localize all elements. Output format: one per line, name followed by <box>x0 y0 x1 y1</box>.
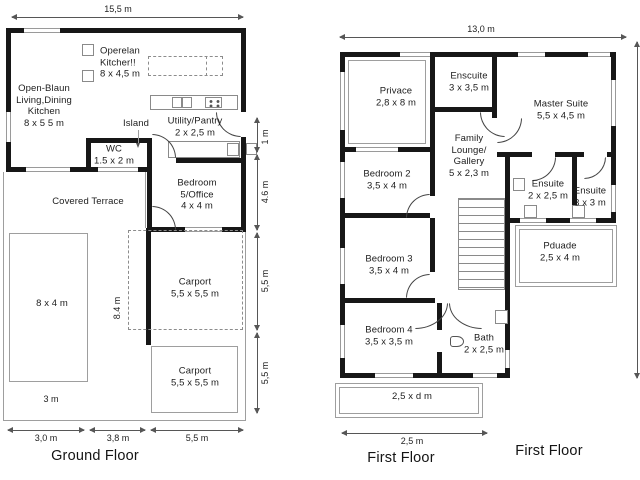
terrace-boundary <box>145 172 146 228</box>
wall <box>6 28 11 172</box>
window <box>98 167 138 172</box>
room-label-pool: 8 x 4 m <box>36 298 68 310</box>
window <box>570 218 596 223</box>
wall <box>505 157 510 378</box>
wall <box>147 158 152 163</box>
window <box>611 185 616 212</box>
ground-line <box>3 420 246 421</box>
room-label-utility: Utility/Pantry 2 x 2,5 m <box>168 115 223 138</box>
window <box>340 162 345 198</box>
door-arc <box>152 206 176 230</box>
room-label-ensuite-mid: Ensuite 2 x 2,5 m <box>528 178 568 201</box>
room-label-family: Family Lounge/ Gallery 5 x 2,3 m <box>449 133 489 179</box>
door-arc <box>497 118 522 143</box>
window <box>340 72 345 130</box>
dimension-line <box>342 433 487 434</box>
room-label-carport1: Carport 5,5 x 5,5 m <box>171 276 219 299</box>
dimension-label: 5,5 m <box>260 362 270 385</box>
first-floor-title: First Floor <box>367 450 434 466</box>
toilet-icon <box>450 336 464 347</box>
dimension-line <box>8 430 84 431</box>
door-arc <box>406 274 430 298</box>
room-label-bedroom4: Bedroom 4 3,5 x 3,5 m <box>365 324 413 347</box>
door-arc <box>532 157 556 181</box>
window <box>24 28 60 33</box>
legend-square-icon <box>82 70 94 82</box>
wall <box>241 28 246 112</box>
dimension-label: 13,0 m <box>467 24 495 34</box>
kitchen-counter <box>150 95 238 110</box>
shower-icon <box>524 205 537 218</box>
wall <box>492 52 497 118</box>
window <box>611 80 616 126</box>
terrace-boundary <box>3 172 4 420</box>
dimension-label: 15,5 m <box>104 4 132 14</box>
appliance-icon <box>227 143 239 156</box>
dimension-line <box>637 42 638 378</box>
floor-plan-canvas: 15,5 m <box>0 0 640 480</box>
dimension-line <box>90 430 145 431</box>
dimension-line <box>12 17 243 18</box>
dimension-line <box>257 233 258 330</box>
ground-floor-title: Ground Floor <box>51 448 139 464</box>
room-label-kitchen-note: Operelan Kitcher!! 8 x 4,5 m <box>100 46 140 81</box>
room-label-bedroom5: Bedroom 5/Office 4 x 4 m <box>177 178 216 213</box>
room-label-ensuite-right: Ensuite 3 x 3 m <box>574 185 606 208</box>
room-label-ensuite-top: Enscuite 3 x 3,5 m <box>449 70 489 93</box>
wall <box>340 52 616 57</box>
window <box>505 350 510 368</box>
staircase <box>458 198 505 290</box>
sink-icon <box>513 178 525 191</box>
window <box>518 52 545 57</box>
dimension-line <box>257 155 258 230</box>
window <box>26 167 70 172</box>
island-pointer-arrow <box>136 143 140 148</box>
room-label-living: Open-Blaun Living,Dining Kitchen 8 x 5 5… <box>16 83 72 129</box>
room-label-privace: Privace 2,8 x 8 m <box>376 85 416 108</box>
cistern-icon <box>495 310 508 324</box>
room-label-carport2: Carport 5,5 x 5,5 m <box>171 365 219 388</box>
island-pointer-line <box>138 130 139 143</box>
window <box>400 52 432 57</box>
window <box>340 248 345 284</box>
window <box>340 325 345 358</box>
room-label-master: Master Suite 5,5 x 4,5 m <box>534 98 589 121</box>
door-arc <box>406 194 430 218</box>
room-label-bath: Bath 2 x 2,5 m <box>464 332 504 355</box>
wall <box>497 152 532 157</box>
first-floor-side-title: First Floor <box>515 443 582 459</box>
window <box>6 112 11 142</box>
wall <box>86 138 152 143</box>
dimension-line <box>257 118 258 152</box>
room-label-bedroom3: Bedroom 3 3,5 x 4 m <box>365 253 412 276</box>
door-arc <box>584 157 606 179</box>
legend-square-icon <box>82 44 94 56</box>
window <box>356 147 398 152</box>
room-label-terrace: Covered Terrace <box>52 196 124 208</box>
room-label-bedroom2: Bedroom 2 3,5 x 4 m <box>363 168 410 191</box>
dimension-label: 5,5 m <box>260 270 270 293</box>
dimension-label: 1 m <box>260 129 270 144</box>
wall <box>430 52 435 196</box>
wall <box>430 218 435 272</box>
dimension-label: 3 m <box>43 394 58 404</box>
kitchen-island-divider <box>206 56 207 76</box>
wall <box>607 152 616 157</box>
room-label-wc: WC 1.5 x 2 m <box>94 143 134 166</box>
dimension-line <box>151 430 243 431</box>
room-label-balcony: 2,5 x d m <box>392 391 432 403</box>
sink-icon <box>182 97 192 108</box>
dimension-label: 2,5 m <box>401 436 424 446</box>
window <box>520 218 546 223</box>
dimension-line <box>257 333 258 413</box>
room-label-pduade: Pduade 2,5 x 4 m <box>540 240 580 263</box>
terrace-boundary <box>245 232 246 420</box>
dimension-label: 8.4 m <box>112 297 122 320</box>
wall <box>176 158 241 163</box>
door-arc <box>449 303 482 329</box>
dimension-label: 3,0 m <box>35 433 58 443</box>
sink-icon <box>172 97 182 108</box>
dimension-label: 3,8 m <box>107 433 130 443</box>
room-label-island: Island <box>123 118 149 130</box>
wall <box>555 152 584 157</box>
door-arc <box>415 303 448 329</box>
kitchen-island-outline <box>148 56 223 76</box>
dimension-line <box>340 37 626 38</box>
window <box>588 52 610 57</box>
stove-icon <box>205 97 222 108</box>
window <box>473 373 497 378</box>
window <box>375 373 413 378</box>
dimension-label: 5,5 m <box>186 433 209 443</box>
dimension-label: 4.6 m <box>260 181 270 204</box>
